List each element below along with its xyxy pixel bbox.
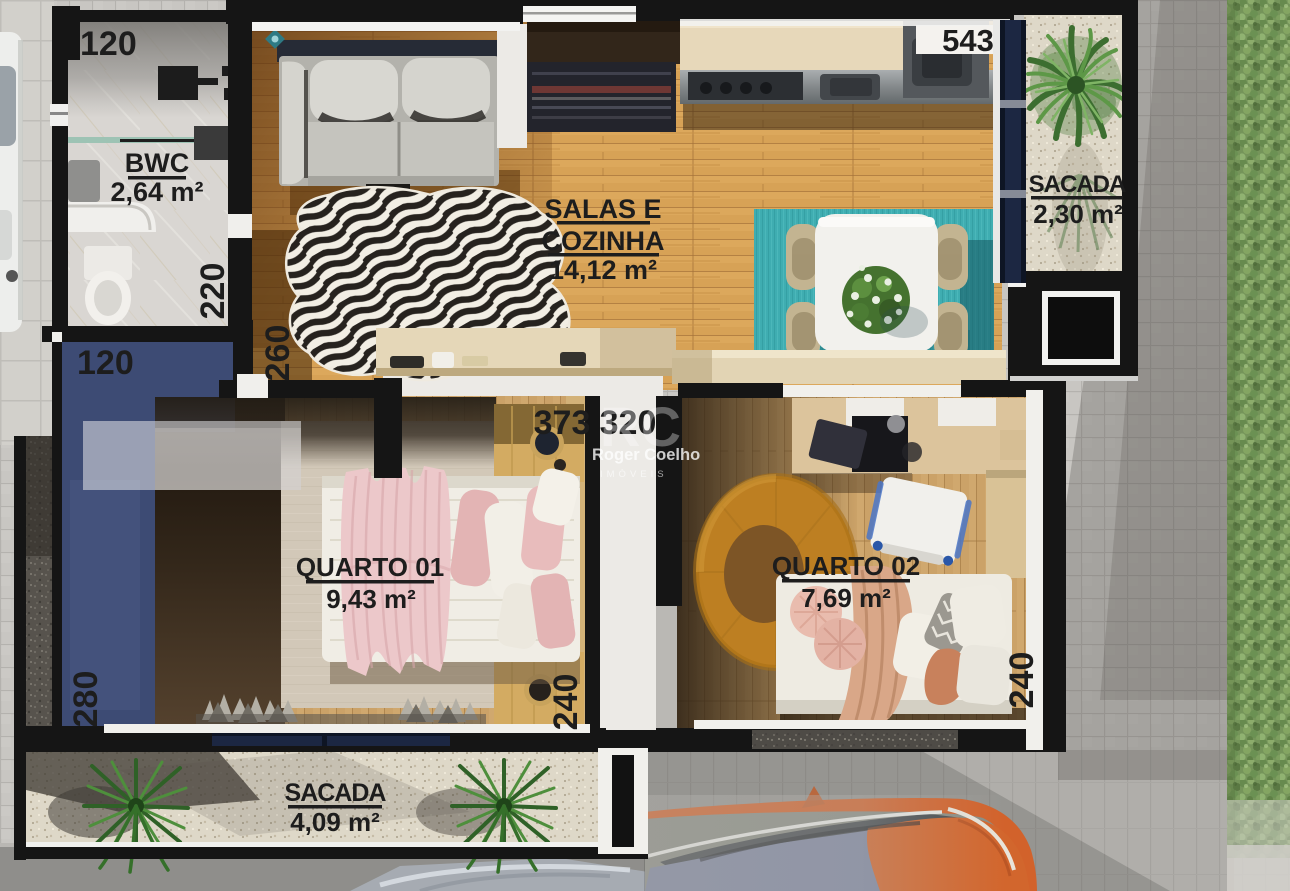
svg-text:14,12 m²: 14,12 m² — [549, 255, 657, 285]
svg-text:4,09 m²: 4,09 m² — [290, 807, 380, 837]
svg-text:373: 373 — [534, 404, 591, 442]
svg-text:120: 120 — [80, 25, 137, 63]
svg-text:120: 120 — [77, 344, 134, 382]
svg-text:SACADA: SACADA — [285, 779, 387, 807]
svg-text:240: 240 — [1003, 652, 1041, 709]
svg-text:280: 280 — [67, 671, 105, 728]
svg-text:2,64 m²: 2,64 m² — [110, 177, 203, 207]
svg-text:7,69 m²: 7,69 m² — [801, 583, 891, 613]
svg-text:COZINHA: COZINHA — [542, 226, 665, 256]
svg-text:2,30 m²: 2,30 m² — [1033, 199, 1123, 229]
svg-text:SALAS E: SALAS E — [544, 194, 661, 224]
svg-text:QUARTO 01: QUARTO 01 — [296, 552, 444, 582]
svg-text:543: 543 — [942, 23, 994, 58]
svg-text:QUARTO 02: QUARTO 02 — [772, 551, 920, 581]
svg-text:IMÓVEIS: IMÓVEIS — [600, 469, 668, 480]
svg-text:BWC: BWC — [125, 148, 189, 178]
svg-text:260: 260 — [259, 325, 297, 382]
svg-text:240: 240 — [547, 674, 585, 731]
svg-text:SACADA: SACADA — [1029, 171, 1126, 198]
svg-text:220: 220 — [194, 263, 232, 320]
svg-text:Roger Coelho: Roger Coelho — [592, 446, 700, 464]
svg-text:9,43 m²: 9,43 m² — [326, 584, 416, 614]
